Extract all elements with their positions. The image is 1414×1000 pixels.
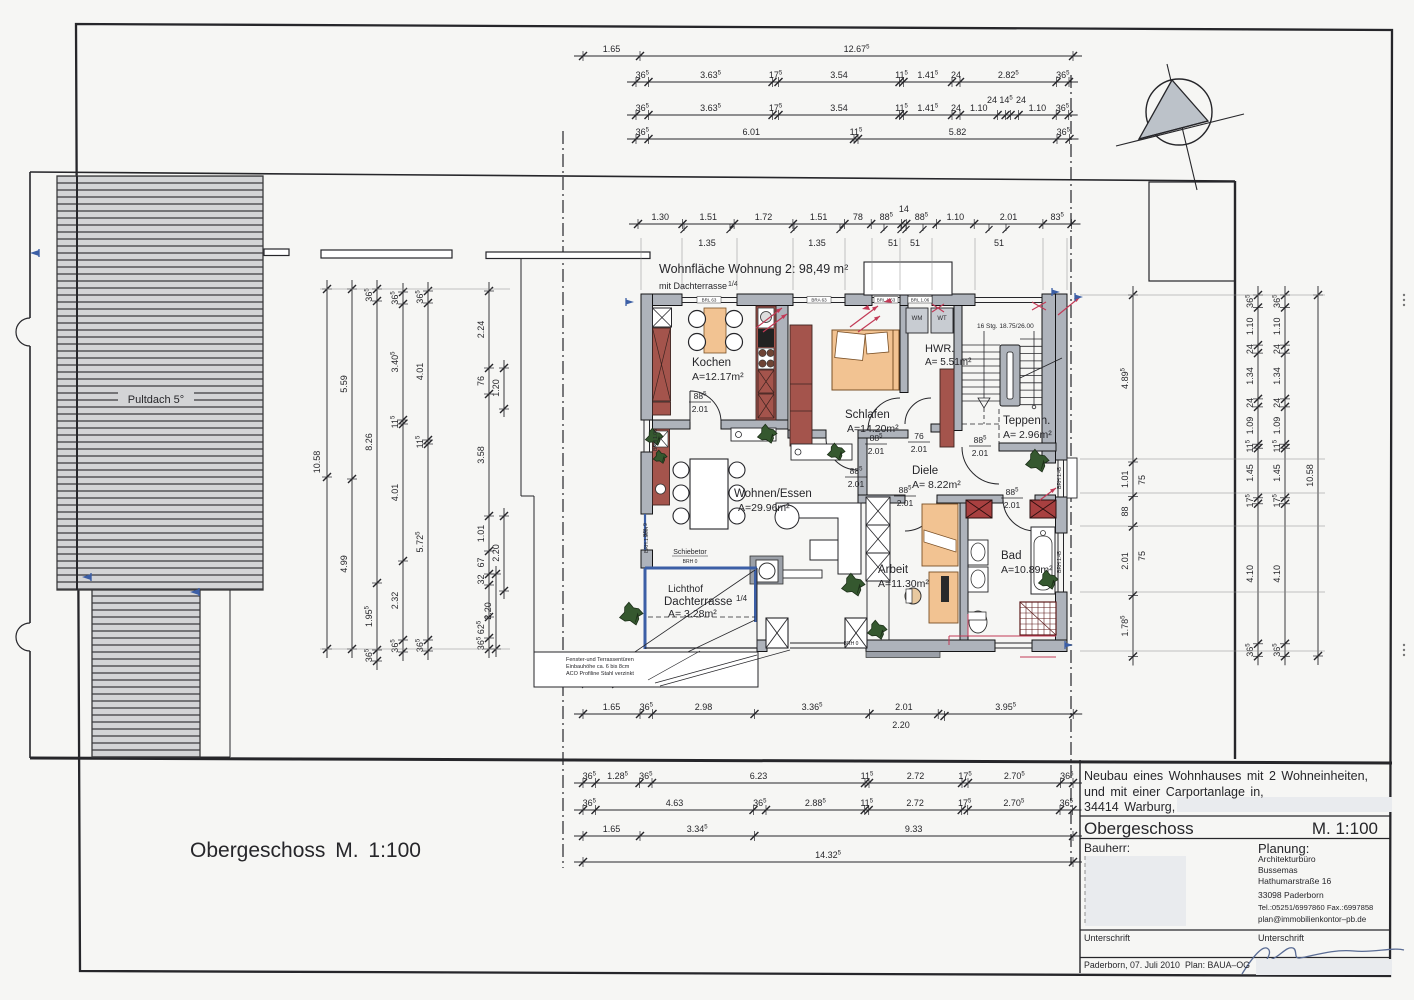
svg-text:Architekturbüro: Architekturbüro [1258, 854, 1316, 864]
svg-text:1.51: 1.51 [700, 212, 718, 222]
svg-text:4.01: 4.01 [390, 484, 400, 502]
svg-text:9.33: 9.33 [905, 824, 923, 834]
svg-text:BRH 0: BRH 0 [844, 641, 859, 647]
svg-text:1.45: 1.45 [1245, 464, 1255, 482]
svg-text:Teppenh.: Teppenh. [1003, 415, 1050, 427]
svg-text:1.35: 1.35 [808, 238, 826, 248]
svg-text:2.20: 2.20 [892, 720, 910, 730]
svg-text:88: 88 [1120, 506, 1130, 516]
svg-text:2.01: 2.01 [897, 498, 914, 508]
svg-text:Dachterrasse: Dachterrasse [664, 596, 732, 608]
svg-text:1.01: 1.01 [1120, 470, 1130, 488]
svg-text:ACO Profiline Stahl verzinkt: ACO Profiline Stahl verzinkt [566, 671, 634, 677]
svg-text:Bauherr:: Bauherr: [1084, 841, 1130, 855]
svg-text:2.01: 2.01 [895, 702, 913, 712]
svg-text:1.10: 1.10 [970, 103, 988, 113]
svg-text:3.58: 3.58 [476, 446, 486, 464]
svg-text:67: 67 [476, 557, 486, 567]
svg-text:WM: WM [912, 316, 923, 322]
svg-text:24: 24 [951, 70, 961, 80]
svg-text:1.45: 1.45 [1272, 464, 1282, 482]
svg-text:6.01: 6.01 [742, 127, 760, 137]
svg-text:2.20: 2.20 [483, 602, 493, 620]
svg-text:2.98: 2.98 [695, 702, 713, 712]
svg-text:2.72: 2.72 [906, 798, 924, 808]
svg-text:Einbauhöhe ca. 6 bis 8cm: Einbauhöhe ca. 6 bis 8cm [566, 664, 630, 670]
svg-text:1.65: 1.65 [603, 824, 621, 834]
svg-text:Wohnen/Essen: Wohnen/Essen [734, 488, 812, 500]
svg-text:1.34: 1.34 [1272, 367, 1282, 385]
svg-text:A= 3.28m²: A= 3.28m² [668, 608, 717, 620]
svg-text:und mit einer Carportanlage: und mit einer Carportanlage in, [1084, 785, 1264, 799]
svg-text:Lichthof: Lichthof [668, 584, 703, 595]
svg-text:Wohnfläche Wohnung 2: 98,4: Wohnfläche Wohnung 2: 98,49 m² [659, 262, 848, 276]
svg-text:Fenster-und Terrassentüren: Fenster-und Terrassentüren [566, 657, 634, 663]
svg-text:3.54: 3.54 [830, 70, 848, 80]
svg-text:24: 24 [1272, 398, 1282, 408]
svg-text:Paderborn, 07. Juli 2010: Paderborn, 07. Juli 2010 [1084, 960, 1180, 970]
svg-text:8.26: 8.26 [364, 433, 374, 451]
svg-text:2.01: 2.01 [1004, 500, 1021, 510]
svg-text:Schlafen: Schlafen [845, 409, 890, 421]
svg-text:A=11.30m²: A=11.30m² [878, 578, 929, 590]
svg-text:24: 24 [1272, 344, 1282, 354]
svg-text:1.10: 1.10 [1029, 103, 1047, 113]
svg-text:1.34: 1.34 [1245, 367, 1255, 385]
svg-text:5.82: 5.82 [949, 127, 967, 137]
svg-text:1.01: 1.01 [476, 525, 486, 543]
svg-text:Schiebetor: Schiebetor [673, 549, 707, 556]
svg-text:4.10: 4.10 [1245, 565, 1255, 583]
svg-text:76: 76 [476, 376, 486, 386]
svg-text:BRH 1.45: BRH 1.45 [1057, 467, 1063, 489]
svg-text:2.72: 2.72 [907, 771, 925, 781]
svg-text:16 Stg. 18.75/26.00: 16 Stg. 18.75/26.00 [977, 323, 1034, 330]
svg-text:1.09: 1.09 [1272, 417, 1282, 435]
svg-text:Obergeschoss: Obergeschoss [1084, 819, 1194, 838]
svg-text:6.23: 6.23 [750, 771, 768, 781]
svg-text:1.65: 1.65 [603, 44, 621, 54]
svg-text:2.01: 2.01 [911, 444, 928, 454]
svg-text:33098 Paderborn: 33098 Paderborn [1258, 890, 1324, 900]
svg-text:1.10: 1.10 [947, 212, 965, 222]
svg-text:BRL 1.06: BRL 1.06 [911, 298, 930, 303]
svg-text:Bad: Bad [1001, 550, 1021, 562]
svg-text:34414 Warburg,: 34414 Warburg, [1084, 800, 1175, 814]
svg-text:A=12.17m²: A=12.17m² [692, 371, 744, 383]
svg-text:mit Dachterrasse: mit Dachterrasse [659, 281, 727, 291]
svg-text:BRH 1.45: BRH 1.45 [1057, 551, 1063, 573]
svg-text:10.58: 10.58 [312, 451, 322, 474]
svg-text:51: 51 [910, 238, 920, 248]
svg-text:10.58: 10.58 [1305, 464, 1315, 487]
svg-text:2.01: 2.01 [1000, 212, 1018, 222]
svg-text:14: 14 [899, 204, 909, 214]
svg-text:Unterschrift: Unterschrift [1258, 933, 1305, 943]
svg-text:24: 24 [1016, 95, 1026, 105]
svg-text:Tel.:05251/6997860 Fax.:699785: Tel.:05251/6997860 Fax.:6997858 [1258, 903, 1373, 912]
svg-text:1.35: 1.35 [698, 238, 716, 248]
svg-text:Hathumarstraße 16: Hathumarstraße 16 [1258, 876, 1331, 886]
svg-text:BRH.1.20m: BRH.1.20m [644, 527, 650, 553]
svg-text:2.24: 2.24 [476, 321, 486, 339]
svg-text:1.30: 1.30 [651, 212, 669, 222]
svg-text:1.10: 1.10 [1272, 318, 1282, 336]
svg-text:5.59: 5.59 [339, 375, 349, 393]
svg-text:1.51: 1.51 [810, 212, 828, 222]
svg-text:24: 24 [1245, 398, 1255, 408]
svg-text:A=29.96m²: A=29.96m² [738, 502, 790, 514]
svg-text:1.09: 1.09 [1245, 417, 1255, 435]
svg-text:2.01: 2.01 [868, 446, 885, 456]
svg-text:4.01: 4.01 [415, 363, 425, 381]
svg-text:76: 76 [914, 431, 924, 441]
svg-text:2.01: 2.01 [848, 479, 865, 489]
svg-text:Arbeit: Arbeit [878, 564, 909, 576]
svg-text:Bussemas: Bussemas [1258, 865, 1298, 875]
svg-text:51: 51 [888, 238, 898, 248]
svg-text:24: 24 [987, 95, 997, 105]
svg-text:24: 24 [1245, 344, 1255, 354]
svg-text:1.72: 1.72 [755, 212, 773, 222]
svg-text:BRH 1.06: BRH 1.06 [653, 429, 659, 451]
svg-text:A= 8.22m²: A= 8.22m² [912, 479, 961, 491]
svg-text:Obergeschoss M. 1:100: Obergeschoss M. 1:100 [190, 839, 421, 862]
svg-text:4.99: 4.99 [339, 555, 349, 573]
svg-text:3.54: 3.54 [830, 103, 848, 113]
svg-text:2.01: 2.01 [1120, 552, 1130, 570]
svg-text:2.20: 2.20 [491, 544, 501, 562]
svg-text:Unterschrift: Unterschrift [1084, 933, 1131, 943]
svg-text:75: 75 [1137, 475, 1147, 485]
svg-text:1.20: 1.20 [491, 379, 501, 397]
svg-text:78: 78 [853, 212, 863, 222]
svg-text:WT: WT [937, 316, 947, 322]
svg-text:M. 1:100: M. 1:100 [1312, 819, 1378, 838]
svg-text:1/4: 1/4 [728, 281, 738, 288]
svg-text:2.01: 2.01 [972, 448, 989, 458]
svg-text:2.32: 2.32 [390, 592, 400, 610]
svg-text:32: 32 [476, 574, 486, 584]
svg-text:24: 24 [951, 103, 961, 113]
svg-text:BRA 63: BRA 63 [811, 298, 827, 303]
svg-text:2.01: 2.01 [692, 404, 709, 414]
svg-text:Plan: BAUA–OG: Plan: BAUA–OG [1185, 960, 1250, 970]
svg-text:BRH 0: BRH 0 [683, 559, 698, 565]
svg-text:BRL 63: BRL 63 [702, 298, 717, 303]
svg-text:HWR.: HWR. [925, 343, 954, 355]
svg-text:A= 2.96m²: A= 2.96m² [1003, 429, 1052, 441]
svg-text:plan@immobilienkontor–pb.de: plan@immobilienkontor–pb.de [1258, 915, 1367, 924]
svg-text:4.10: 4.10 [1272, 565, 1282, 583]
svg-text:75: 75 [1137, 551, 1147, 561]
svg-text:Neubau eines Wohnhauses mit: Neubau eines Wohnhauses mit 2 Wohneinhei… [1084, 769, 1368, 783]
svg-text:1.65: 1.65 [603, 702, 621, 712]
svg-text:51: 51 [994, 238, 1004, 248]
svg-text:Diele: Diele [912, 465, 938, 477]
svg-text:4.63: 4.63 [666, 798, 684, 808]
svg-text:1.10: 1.10 [1245, 318, 1255, 336]
svg-text:1/4: 1/4 [736, 594, 748, 603]
svg-text:Pultdach 5°: Pultdach 5° [128, 394, 184, 406]
svg-text:Kochen: Kochen [692, 357, 731, 369]
